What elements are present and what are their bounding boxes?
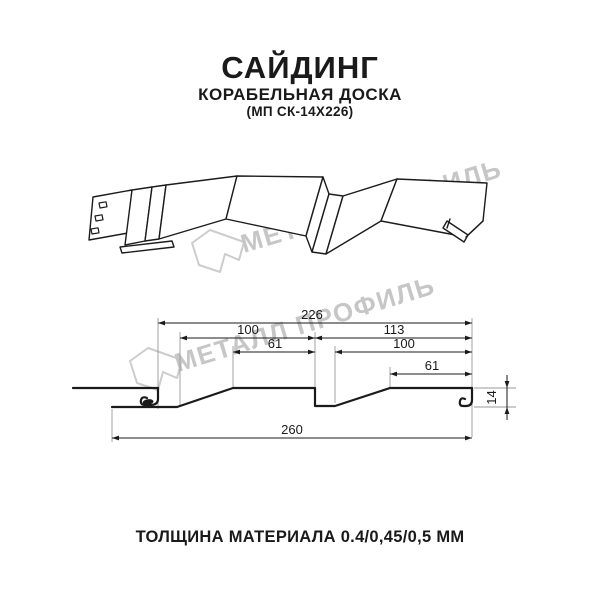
arrowhead-icon (465, 336, 472, 341)
material-thickness-note: ТОЛЩИНА МАТЕРИАЛА 0.4/0,45/0,5 ММ (0, 528, 600, 547)
arrowhead-icon (390, 372, 397, 377)
technical-drawing: МЕТАЛЛ ПРОФИЛЬ МЕТАЛЛ ПРОФИЛЬ (0, 0, 600, 600)
arrowhead-icon (505, 381, 510, 388)
nail-hole-icon (99, 202, 107, 208)
metall-profil-logo-icon (192, 230, 244, 272)
arrowhead-icon (505, 407, 510, 414)
dimension-value: 113 (384, 322, 405, 337)
right-end-break (460, 388, 472, 406)
dimension-value: 14 (484, 390, 499, 404)
arrowhead-icon (315, 336, 322, 341)
arrowhead-icon (465, 436, 472, 441)
arrowhead-icon (335, 350, 342, 355)
dimension-value: 61 (268, 336, 282, 351)
nail-hole-icon (95, 215, 103, 221)
arrowhead-icon (465, 350, 472, 355)
arrowhead-icon (180, 336, 187, 341)
arrowhead-icon (465, 321, 472, 326)
arrowhead-icon (112, 436, 119, 441)
dimension-value: 61 (425, 358, 439, 373)
slope-face-1 (159, 176, 237, 239)
arrowhead-icon (465, 372, 472, 377)
dimension-value: 100 (393, 336, 415, 351)
arrowhead-icon (158, 321, 165, 326)
nail-hole-icon (91, 228, 99, 234)
arrowhead-icon (308, 350, 315, 355)
board-face-2 (381, 179, 487, 237)
dimension-value: 226 (301, 307, 323, 322)
profile-outline (112, 388, 472, 407)
dimension-value: 100 (237, 322, 259, 337)
dimension-value: 260 (281, 422, 303, 437)
